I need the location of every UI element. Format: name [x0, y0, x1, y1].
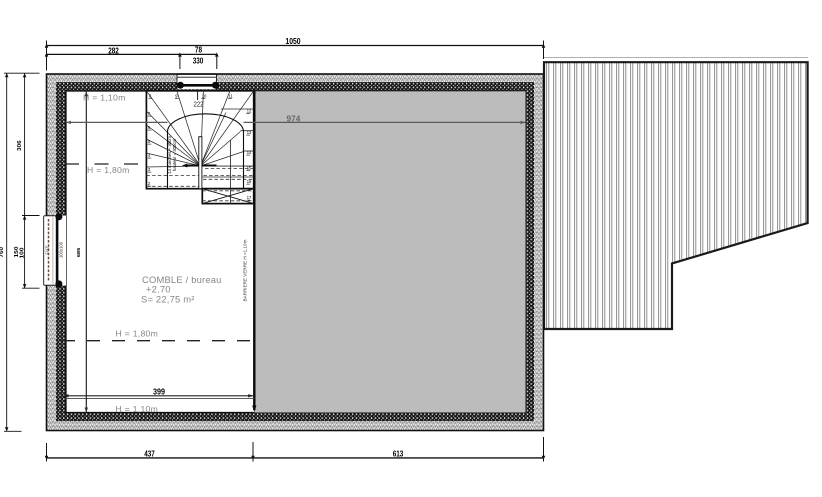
svg-text:613: 613 — [393, 448, 404, 458]
svg-text:S= 22,75 m²: S= 22,75 m² — [141, 294, 195, 305]
svg-text:FIXE: FIXE — [44, 245, 49, 255]
svg-text:BARRIERE VERRE H =1,10m: BARRIERE VERRE H =1,10m — [243, 239, 248, 301]
svg-text:1050: 1050 — [285, 36, 301, 46]
svg-text:H = 1,80m: H = 1,80m — [87, 165, 130, 175]
svg-text:306: 306 — [17, 140, 23, 151]
svg-text:437: 437 — [144, 448, 155, 458]
svg-text:78: 78 — [195, 45, 202, 55]
svg-text:H = 1,80m: H = 1,80m — [116, 329, 159, 339]
svg-text:330: 330 — [193, 56, 204, 66]
svg-text:11: 11 — [229, 94, 234, 99]
svg-text:760: 760 — [0, 247, 5, 258]
svg-text:282: 282 — [108, 45, 119, 55]
svg-text:17: 17 — [247, 195, 252, 200]
svg-text:12: 12 — [247, 109, 252, 114]
svg-text:399: 399 — [153, 386, 165, 396]
svg-text:100: 100 — [19, 247, 25, 258]
svg-text:H = 1,10m: H = 1,10m — [116, 404, 159, 414]
svg-text:14: 14 — [247, 150, 252, 155]
svg-text:10: 10 — [202, 94, 207, 99]
svg-text:13: 13 — [247, 130, 252, 135]
svg-text:100x100: 100x100 — [59, 241, 64, 258]
svg-text:hauteur = 300cm: hauteur = 300cm — [172, 138, 177, 171]
svg-text:685: 685 — [76, 247, 82, 257]
svg-text:16: 16 — [247, 179, 252, 184]
svg-text:974: 974 — [287, 114, 301, 124]
svg-text:15: 15 — [247, 166, 252, 171]
svg-text:222: 222 — [194, 100, 204, 109]
svg-text:H = 1,10m: H = 1,10m — [83, 92, 126, 102]
